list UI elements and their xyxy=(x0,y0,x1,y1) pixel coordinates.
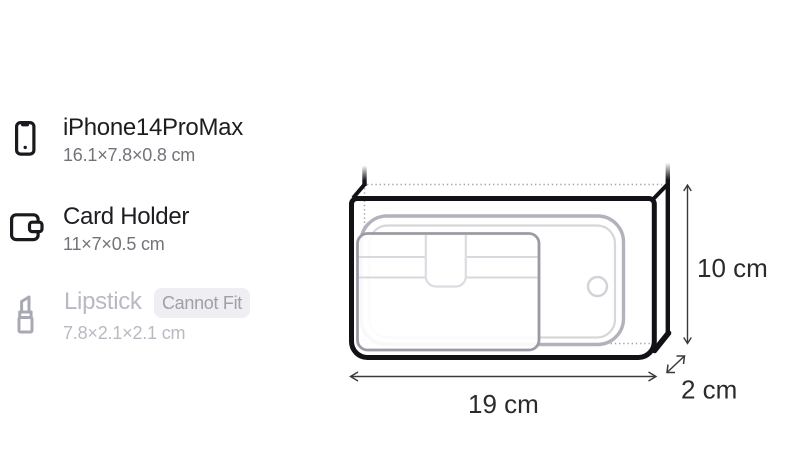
svg-text:2 cm: 2 cm xyxy=(681,375,737,405)
svg-text:19 cm: 19 cm xyxy=(468,389,539,419)
svg-text:10 cm: 10 cm xyxy=(697,253,768,283)
